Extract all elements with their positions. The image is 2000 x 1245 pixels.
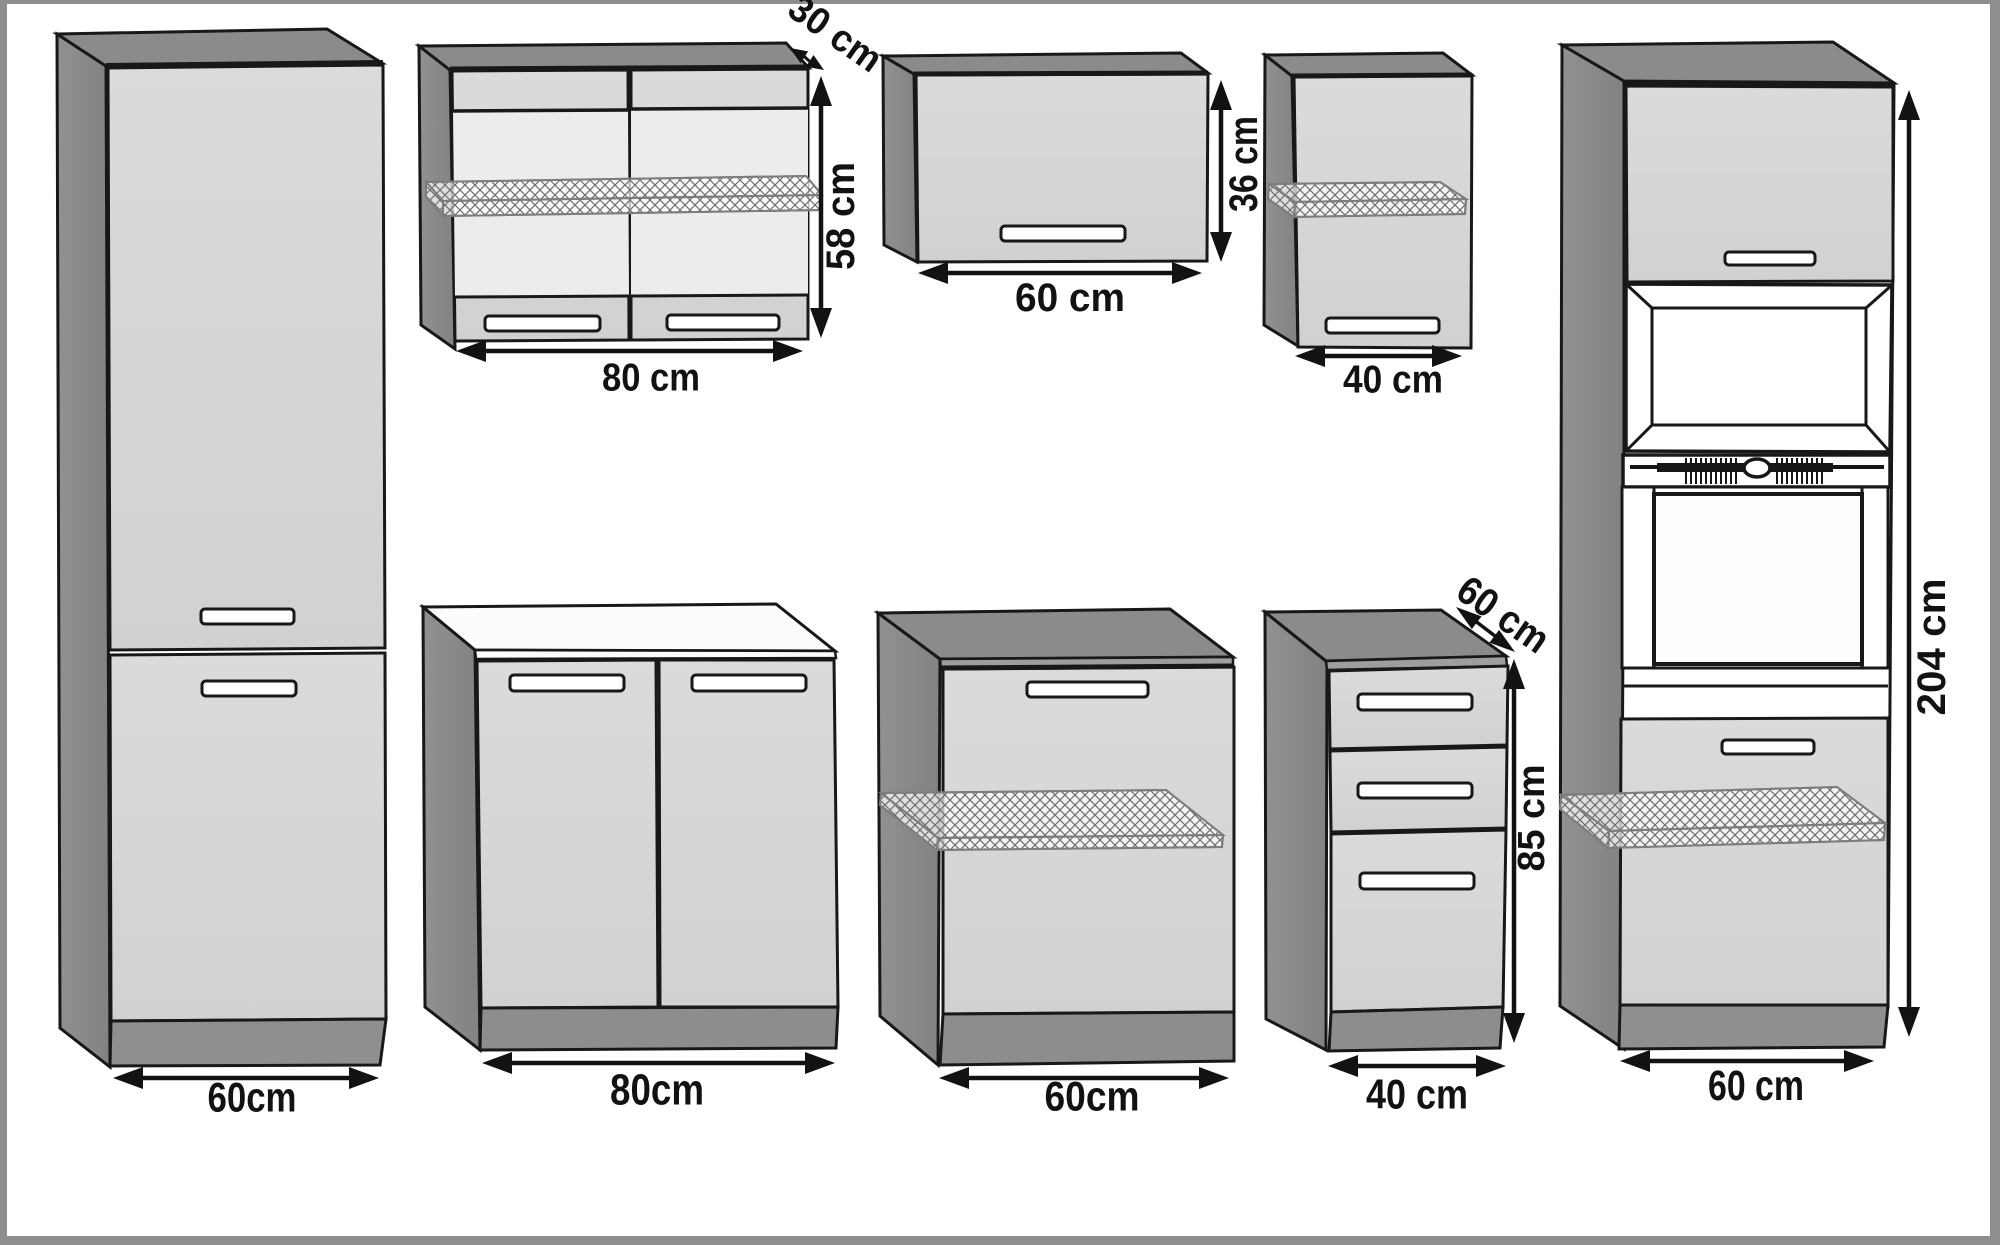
svg-text:60cm: 60cm [1045,1073,1140,1120]
svg-text:60cm: 60cm [208,1074,297,1121]
svg-text:60 cm: 60 cm [1015,276,1125,320]
svg-text:40 cm: 40 cm [1343,359,1443,402]
svg-text:80 cm: 80 cm [602,357,700,400]
svg-text:80cm: 80cm [610,1066,704,1115]
svg-text:85 cm: 85 cm [1511,765,1553,872]
svg-text:36 cm: 36 cm [1222,116,1266,212]
svg-text:204 cm: 204 cm [1910,579,1954,716]
svg-text:58 cm: 58 cm [819,162,863,270]
svg-text:40 cm: 40 cm [1366,1071,1468,1118]
svg-text:60 cm: 60 cm [1708,1062,1804,1110]
